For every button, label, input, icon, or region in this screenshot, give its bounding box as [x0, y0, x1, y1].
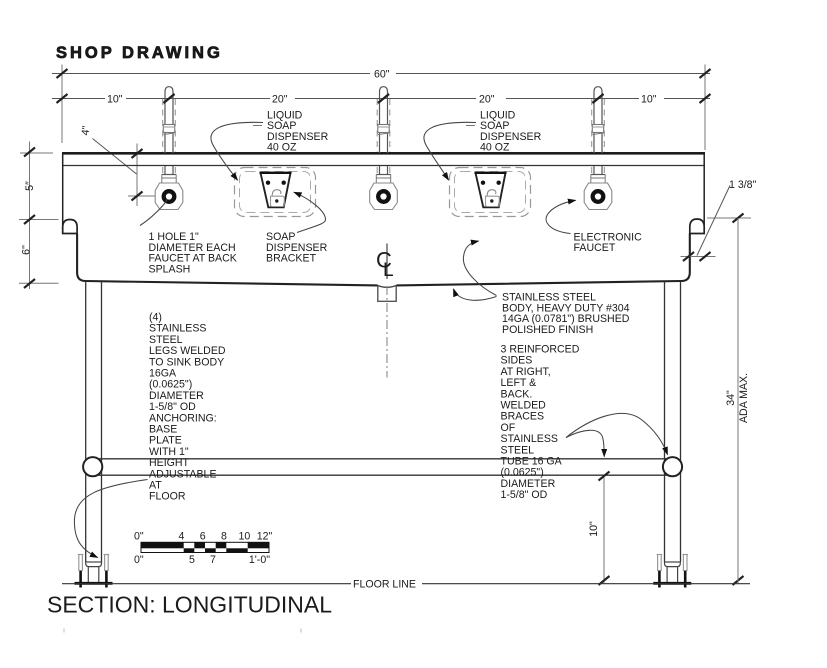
svg-text:ANCHORING:: ANCHORING:	[149, 412, 217, 424]
svg-text:6": 6"	[21, 245, 33, 255]
svg-text:STEEL: STEEL	[149, 334, 183, 346]
svg-text:1-5/8" OD: 1-5/8" OD	[501, 489, 548, 501]
svg-text:7: 7	[210, 554, 216, 566]
svg-text:20": 20"	[272, 94, 288, 106]
svg-text:SIDES: SIDES	[501, 355, 533, 367]
svg-text:16GA: 16GA	[149, 368, 177, 380]
svg-text:BRACES: BRACES	[501, 411, 545, 423]
svg-text:(0.0625"): (0.0625")	[149, 379, 192, 391]
svg-text:POLISHED FINISH: POLISHED FINISH	[502, 324, 593, 336]
svg-text:1 3/8": 1 3/8"	[729, 179, 757, 191]
svg-text:0": 0"	[134, 554, 144, 566]
svg-text:LEGS WELDED: LEGS WELDED	[149, 345, 226, 357]
svg-text:FAUCET: FAUCET	[574, 242, 616, 254]
svg-text:BACK.: BACK.	[501, 388, 533, 400]
svg-text:BASE: BASE	[149, 424, 177, 436]
svg-text:40 OZ: 40 OZ	[480, 142, 510, 154]
svg-text:1-5/8" OD: 1-5/8" OD	[149, 401, 196, 413]
svg-text:3 REINFORCED: 3 REINFORCED	[501, 344, 580, 356]
svg-text:FLOOR: FLOOR	[149, 491, 186, 503]
svg-text:40 OZ: 40 OZ	[267, 142, 297, 154]
svg-text:4: 4	[178, 531, 184, 543]
svg-text:10": 10"	[641, 94, 657, 106]
svg-text:DIAMETER: DIAMETER	[149, 390, 204, 402]
svg-text:ADJUSTABLE: ADJUSTABLE	[149, 468, 217, 480]
svg-text:SPLASH: SPLASH	[149, 263, 191, 275]
svg-text:SECTION: LONGITUDINAL: SECTION: LONGITUDINAL	[47, 592, 332, 618]
svg-text:LEFT &: LEFT &	[501, 377, 537, 389]
svg-text:WELDED: WELDED	[501, 400, 547, 412]
svg-text:AT RIGHT,: AT RIGHT,	[501, 366, 551, 378]
svg-text:6: 6	[200, 531, 206, 543]
svg-text:OF: OF	[501, 422, 516, 434]
svg-text:5: 5	[189, 554, 195, 566]
svg-text:L: L	[383, 260, 394, 281]
svg-text:ADA MAX.: ADA MAX.	[738, 373, 750, 423]
svg-text:0": 0"	[134, 531, 144, 543]
svg-text:5″: 5″	[24, 181, 36, 191]
svg-text:FLOOR LINE: FLOOR LINE	[353, 579, 416, 591]
svg-text:STEEL: STEEL	[501, 444, 535, 456]
svg-text:20": 20"	[479, 94, 495, 106]
svg-text:4": 4"	[79, 125, 92, 136]
svg-text:WITH 1": WITH 1"	[149, 446, 189, 458]
svg-text:DIAMETER: DIAMETER	[501, 478, 556, 490]
svg-text:(0.0625"): (0.0625")	[501, 467, 544, 479]
svg-text:(4): (4)	[149, 312, 162, 324]
svg-text:SHOP DRAWING: SHOP DRAWING	[56, 44, 223, 62]
svg-text:HEIGHT: HEIGHT	[149, 457, 190, 469]
svg-text:8: 8	[221, 531, 227, 543]
svg-text:TO SINK BODY: TO SINK BODY	[149, 356, 224, 368]
svg-text:BRACKET: BRACKET	[266, 253, 317, 265]
svg-text:TUBE 16 GA: TUBE 16 GA	[501, 456, 563, 468]
svg-text:PLATE: PLATE	[149, 435, 182, 447]
svg-text:AT: AT	[149, 480, 162, 492]
svg-text:1'-0": 1'-0"	[249, 554, 270, 566]
svg-text:10": 10"	[588, 521, 600, 537]
svg-text:12": 12"	[257, 531, 273, 543]
svg-text:STAINLESS: STAINLESS	[501, 433, 559, 445]
svg-text:34": 34"	[725, 390, 737, 406]
svg-text:10": 10"	[107, 94, 123, 106]
svg-text:60": 60"	[374, 69, 390, 81]
svg-text:10: 10	[239, 531, 251, 543]
svg-text:STAINLESS: STAINLESS	[149, 323, 207, 335]
